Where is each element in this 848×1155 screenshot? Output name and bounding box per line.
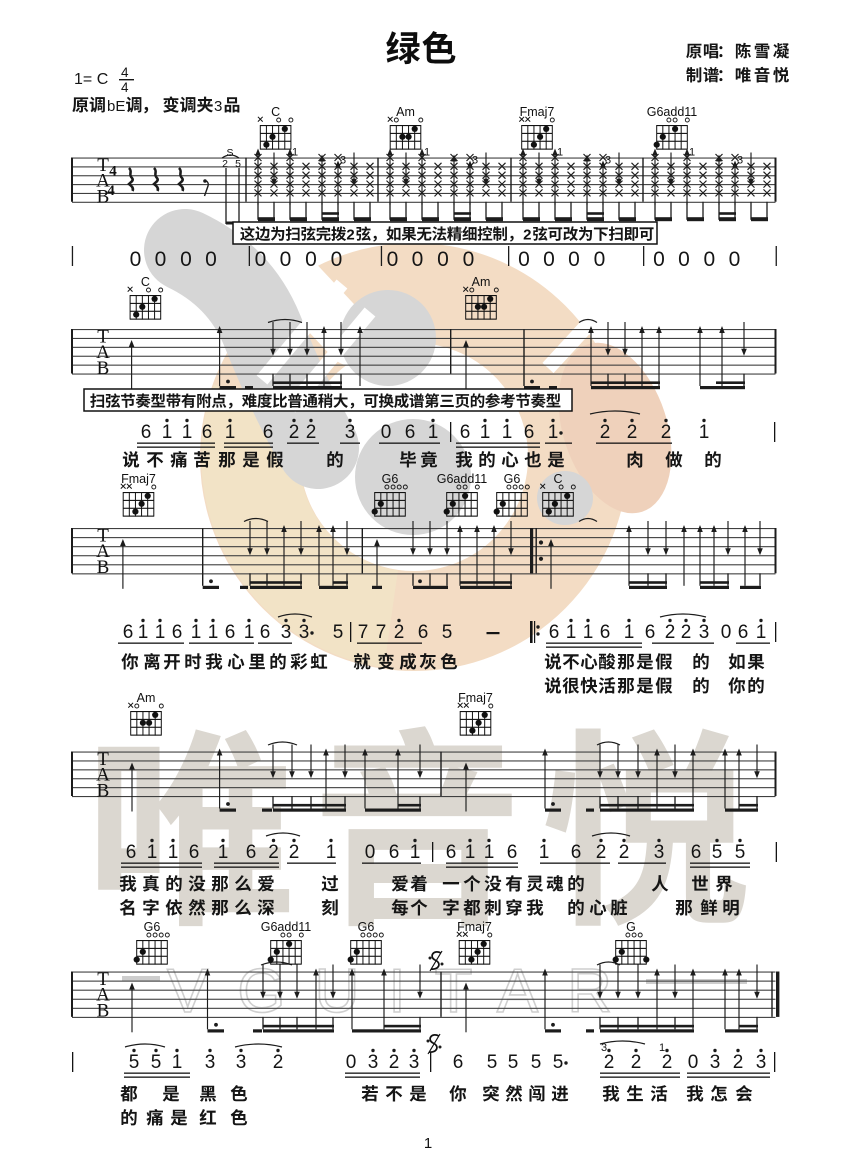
svg-text:6: 6: [460, 422, 471, 443]
svg-text:5: 5: [553, 1052, 564, 1073]
svg-text:1: 1: [557, 147, 563, 159]
svg-text:1: 1: [225, 422, 236, 443]
svg-text:2: 2: [681, 622, 692, 643]
svg-text:6: 6: [738, 622, 749, 643]
svg-text:5: 5: [235, 158, 241, 170]
svg-text:1= C: 1= C: [74, 71, 108, 88]
svg-text:5: 5: [151, 1052, 162, 1073]
svg-text:0: 0: [653, 248, 665, 271]
svg-text:G6add11: G6add11: [437, 472, 488, 486]
svg-text:0: 0: [180, 248, 192, 271]
svg-text:1: 1: [244, 622, 255, 643]
svg-text:3: 3: [368, 1052, 379, 1073]
svg-text:2: 2: [662, 1052, 673, 1073]
svg-text:VGUITAR: VGUITAR: [167, 957, 641, 1026]
svg-text:1: 1: [147, 842, 158, 863]
svg-text:2: 2: [394, 622, 405, 643]
svg-text:0: 0: [381, 422, 392, 443]
svg-text:3: 3: [205, 1052, 216, 1073]
svg-text:2: 2: [604, 1052, 615, 1073]
svg-text:0: 0: [463, 248, 475, 271]
svg-text:1: 1: [624, 622, 635, 643]
svg-text:3: 3: [601, 1042, 607, 1054]
svg-text:1: 1: [689, 147, 695, 159]
svg-text:1: 1: [699, 422, 710, 443]
svg-text:1: 1: [191, 622, 202, 643]
svg-text:2: 2: [733, 1052, 744, 1073]
svg-text:3: 3: [409, 1052, 420, 1073]
svg-text:3: 3: [737, 155, 743, 167]
svg-text:0: 0: [155, 248, 167, 271]
svg-text:4: 4: [121, 80, 129, 95]
svg-text:6: 6: [600, 622, 611, 643]
svg-text:5: 5: [712, 842, 723, 863]
svg-text:C: C: [271, 105, 280, 119]
svg-text:0: 0: [568, 248, 580, 271]
svg-text:3: 3: [605, 155, 611, 167]
svg-text:0: 0: [387, 248, 399, 271]
svg-text:3: 3: [472, 155, 478, 167]
svg-text:5: 5: [508, 1052, 519, 1073]
svg-text:1: 1: [583, 622, 594, 643]
svg-text:1: 1: [484, 842, 495, 863]
svg-text:G6: G6: [504, 472, 521, 486]
svg-text:1: 1: [502, 422, 513, 443]
svg-text:0: 0: [205, 248, 217, 271]
svg-text:5: 5: [487, 1052, 498, 1073]
svg-text:2: 2: [346, 227, 354, 244]
svg-text:0: 0: [365, 842, 376, 863]
svg-text:3: 3: [345, 422, 356, 443]
svg-text:6: 6: [172, 622, 183, 643]
svg-text:2: 2: [627, 422, 638, 443]
svg-text:6: 6: [645, 622, 656, 643]
svg-text:0: 0: [346, 1052, 357, 1073]
svg-text:6: 6: [549, 622, 560, 643]
svg-text:6: 6: [389, 842, 400, 863]
svg-text:6: 6: [189, 842, 200, 863]
svg-text:Am: Am: [472, 275, 491, 289]
svg-text:2: 2: [631, 1052, 642, 1073]
svg-text:2: 2: [289, 422, 300, 443]
svg-text:Am: Am: [137, 691, 156, 705]
svg-text:3: 3: [699, 622, 710, 643]
svg-text:6: 6: [446, 842, 457, 863]
svg-text:5: 5: [735, 842, 746, 863]
svg-text:6: 6: [263, 422, 274, 443]
svg-text:2: 2: [619, 842, 630, 863]
svg-text:2: 2: [222, 158, 228, 170]
svg-text:1: 1: [756, 622, 767, 643]
svg-text:B: B: [97, 557, 110, 578]
svg-text:0: 0: [437, 248, 449, 271]
svg-text:4: 4: [107, 183, 115, 199]
svg-text:0: 0: [729, 248, 741, 271]
svg-text:1: 1: [155, 622, 166, 643]
svg-text:3: 3: [654, 842, 665, 863]
svg-text:0: 0: [331, 248, 343, 271]
svg-text:G6: G6: [358, 920, 375, 934]
svg-text:0: 0: [594, 248, 606, 271]
svg-text:0: 0: [130, 248, 142, 271]
svg-text:G6add11: G6add11: [261, 920, 312, 934]
svg-text:2: 2: [665, 622, 676, 643]
svg-text:2: 2: [600, 422, 611, 443]
svg-text:1: 1: [162, 422, 173, 443]
svg-text:1: 1: [292, 147, 298, 159]
svg-text:0: 0: [255, 248, 267, 271]
svg-text:5: 5: [442, 622, 453, 643]
svg-text:5: 5: [129, 1052, 140, 1073]
svg-text:1: 1: [566, 622, 577, 643]
svg-text:0: 0: [305, 248, 317, 271]
svg-text:6: 6: [453, 1052, 464, 1073]
svg-text:G6: G6: [382, 472, 399, 486]
svg-text:Fmaj7: Fmaj7: [520, 105, 555, 119]
svg-text:6: 6: [202, 422, 213, 443]
svg-text:C: C: [141, 275, 150, 289]
svg-text:0: 0: [721, 622, 732, 643]
svg-text:6: 6: [141, 422, 152, 443]
svg-text:6: 6: [571, 842, 582, 863]
svg-text:7: 7: [376, 622, 387, 643]
svg-text:2: 2: [523, 227, 531, 244]
svg-text:6: 6: [418, 622, 429, 643]
svg-text:B: B: [97, 781, 110, 802]
svg-text:6: 6: [225, 622, 236, 643]
svg-text:3: 3: [281, 622, 292, 643]
svg-text:6: 6: [246, 842, 257, 863]
svg-text:B: B: [97, 1001, 110, 1022]
svg-text:0: 0: [704, 248, 716, 271]
svg-text:5: 5: [531, 1052, 542, 1073]
svg-text:3: 3: [236, 1052, 247, 1073]
svg-text:1: 1: [480, 422, 491, 443]
svg-text:1: 1: [208, 622, 219, 643]
svg-text:1: 1: [428, 422, 439, 443]
svg-text:G6add11: G6add11: [647, 105, 698, 119]
svg-text:6: 6: [126, 842, 137, 863]
svg-text:0: 0: [688, 1052, 699, 1073]
svg-text:0: 0: [280, 248, 292, 271]
svg-text:4: 4: [121, 65, 129, 80]
svg-text:3: 3: [710, 1052, 721, 1073]
svg-text:1: 1: [168, 842, 179, 863]
svg-text:3: 3: [756, 1052, 767, 1073]
svg-text:2: 2: [389, 1052, 400, 1073]
svg-text:G: G: [626, 920, 636, 934]
svg-text:bE: bE: [107, 98, 125, 115]
svg-text:C: C: [553, 472, 562, 486]
svg-text:3: 3: [340, 155, 346, 167]
svg-text:2: 2: [661, 422, 672, 443]
svg-text:1: 1: [218, 842, 229, 863]
svg-text:2: 2: [289, 842, 300, 863]
svg-text:6: 6: [691, 842, 702, 863]
svg-text:Fmaj7: Fmaj7: [121, 472, 156, 486]
svg-text:6: 6: [507, 842, 518, 863]
svg-text:1: 1: [326, 842, 337, 863]
svg-text:0: 0: [412, 248, 424, 271]
svg-text:2: 2: [596, 842, 607, 863]
svg-text:6: 6: [405, 422, 416, 443]
svg-text:6: 6: [123, 622, 134, 643]
svg-text:1: 1: [182, 422, 193, 443]
svg-text:Fmaj7: Fmaj7: [458, 691, 493, 705]
svg-text:1: 1: [465, 842, 476, 863]
svg-text:0: 0: [678, 248, 690, 271]
svg-text:2: 2: [268, 842, 279, 863]
svg-text:5: 5: [333, 622, 344, 643]
svg-text:1: 1: [172, 1052, 183, 1073]
svg-text:0: 0: [543, 248, 555, 271]
svg-text:3: 3: [299, 622, 310, 643]
svg-text:1: 1: [410, 842, 421, 863]
svg-text:1: 1: [424, 147, 430, 159]
svg-text:1: 1: [539, 842, 550, 863]
svg-text:6: 6: [260, 622, 271, 643]
svg-text:6: 6: [524, 422, 535, 443]
svg-text:2: 2: [306, 422, 317, 443]
svg-text:Am: Am: [396, 105, 415, 119]
svg-text:1: 1: [424, 1135, 432, 1152]
svg-text:1: 1: [659, 1042, 665, 1054]
svg-text:7: 7: [358, 622, 369, 643]
svg-text:1: 1: [138, 622, 149, 643]
svg-text:0: 0: [518, 248, 530, 271]
svg-text:B: B: [97, 358, 110, 379]
svg-text:G6: G6: [144, 920, 161, 934]
svg-text:3: 3: [214, 98, 222, 115]
svg-text:2: 2: [273, 1052, 284, 1073]
svg-text:4: 4: [109, 164, 117, 180]
svg-text:1: 1: [548, 422, 559, 443]
svg-text:Fmaj7: Fmaj7: [457, 920, 492, 934]
